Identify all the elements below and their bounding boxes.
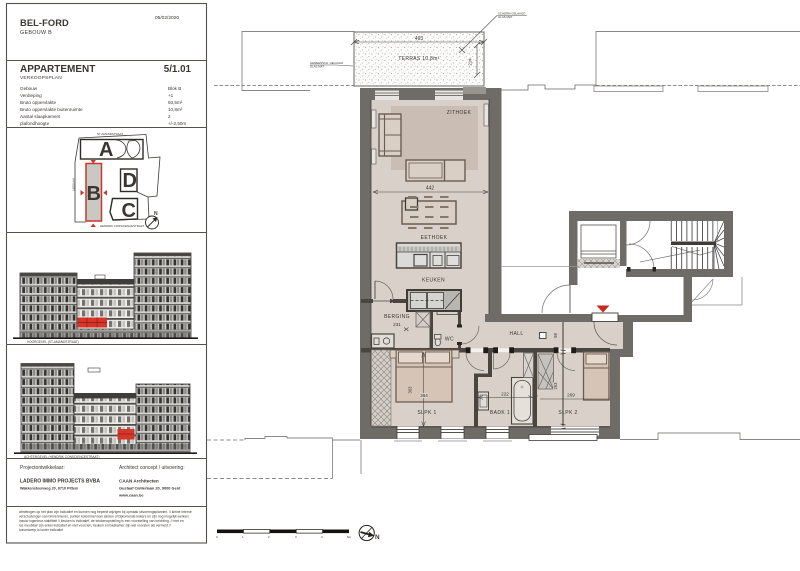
svg-text:EETHOEK: EETHOEK [421, 235, 448, 241]
svg-text:HALL: HALL [509, 331, 523, 337]
svg-text:05/02/2020: 05/02/2020 [155, 15, 179, 21]
svg-text:HENDRIK CONSCIENCESTRAAT: HENDRIK CONSCIENCESTRAAT [100, 224, 145, 228]
svg-text:LADERO IMMO PROJECTS BVBA: LADERO IMMO PROJECTS BVBA [20, 479, 100, 485]
svg-text:+/-2,50m: +/-2,50m [168, 121, 186, 126]
svg-text:verschuivingen van binnenmuren: verschuivingen van binnenmuren, punten k… [19, 515, 189, 519]
svg-text:APPARTEMENT: APPARTEMENT [20, 64, 95, 75]
svg-text:B: B [87, 183, 101, 205]
svg-text:ZITHOEK: ZITHOEK [447, 110, 472, 116]
svg-text:WC: WC [445, 337, 454, 343]
svg-text:LEIEKAAI: LEIEKAAI [72, 178, 76, 191]
svg-text:VERKOOPSPLAN: VERKOOPSPLAN [20, 75, 62, 81]
svg-text:Blok B: Blok B [168, 86, 181, 91]
svg-text:Aantal slaapkamers: Aantal slaapkamers [20, 114, 61, 119]
svg-text:Gebouw: Gebouw [20, 86, 38, 91]
svg-text:5/1.01: 5/1.01 [164, 64, 192, 75]
svg-text:plafondhoogte: plafondhoogte [20, 121, 50, 126]
svg-text:363: 363 [408, 386, 413, 394]
svg-text:442: 442 [426, 186, 435, 192]
svg-text:Gustaaf Callierlaan 20, 9000 G: Gustaaf Callierlaan 20, 9000 Gent [119, 486, 181, 491]
svg-text:ACHTERGEVEL (HENDRIK CONSCIENC: ACHTERGEVEL (HENDRIK CONSCIENCESTRAAT) [24, 455, 99, 459]
svg-text:los meubilair zijn enkel indic: los meubilair zijn enkel indicatief en n… [19, 524, 171, 528]
svg-text:98: 98 [553, 333, 558, 338]
svg-text:GEBOUW B: GEBOUW B [20, 30, 52, 36]
svg-text:www.caan.be: www.caan.be [118, 493, 144, 498]
svg-text:Bruto oppervlakte: Bruto oppervlakte [20, 100, 56, 105]
svg-text:TERRAS 10,8m²: TERRAS 10,8m² [398, 56, 439, 62]
svg-text:BERGING: BERGING [384, 314, 410, 320]
svg-text:D: D [123, 170, 137, 192]
svg-text:KEUKEN: KEUKEN [422, 278, 445, 284]
svg-text:Projectontwikkelaar:: Projectontwikkelaar: [20, 465, 65, 471]
svg-text:214: 214 [468, 58, 473, 66]
svg-text:A: A [99, 139, 113, 161]
svg-text:2: 2 [168, 114, 171, 119]
svg-text:C: C [122, 200, 136, 222]
svg-text:Bruto oppervlakte buitenruimte: Bruto oppervlakte buitenruimte [20, 107, 83, 112]
svg-text:493: 493 [415, 36, 424, 42]
svg-text:ST-AMANDSTRAAT: ST-AMANDSTRAAT [97, 132, 123, 136]
svg-text:CAAN Architecten: CAAN Architecten [119, 479, 159, 484]
svg-text:Verdieping: Verdieping [20, 93, 42, 98]
svg-text:364: 364 [420, 393, 428, 398]
svg-text:SLPK 1: SLPK 1 [417, 410, 436, 416]
svg-text:93,5m²: 93,5m² [168, 100, 183, 105]
svg-text:263: 263 [553, 382, 558, 390]
svg-text:+1: +1 [168, 93, 174, 98]
svg-text:N: N [154, 211, 158, 217]
svg-text:Architect concept / uitvoering: Architect concept / uitvoering: [119, 465, 185, 471]
svg-text:10,8m²: 10,8m² [168, 107, 183, 112]
svg-text:Wakkensteenweg 20, 8710 Pittem: Wakkensteenweg 20, 8710 Pittem [20, 487, 79, 491]
svg-text:N: N [375, 534, 380, 541]
svg-text:BADK 1: BADK 1 [490, 410, 510, 416]
svg-text:231: 231 [393, 322, 401, 327]
svg-text:BEL-FORD: BEL-FORD [20, 18, 69, 28]
svg-text:afmetingen op het plan zijn in: afmetingen op het plan zijn indicatief e… [19, 510, 192, 514]
svg-text:SLPK 2: SLPK 2 [558, 410, 577, 416]
svg-text:269: 269 [567, 393, 575, 398]
svg-text:VOORGEVEL (ST-AMANDSTRAAT): VOORGEVEL (ST-AMANDSTRAAT) [27, 340, 79, 344]
svg-text:5m: 5m [347, 535, 352, 539]
svg-text:222: 222 [501, 392, 509, 397]
svg-text:insulw ingenieur-stabiliteit: insulw ingenieur-stabiliteit // keuken i… [19, 519, 184, 523]
svg-text:tuinontwerp is louter indicati: tuinontwerp is louter indicatief [19, 528, 63, 532]
